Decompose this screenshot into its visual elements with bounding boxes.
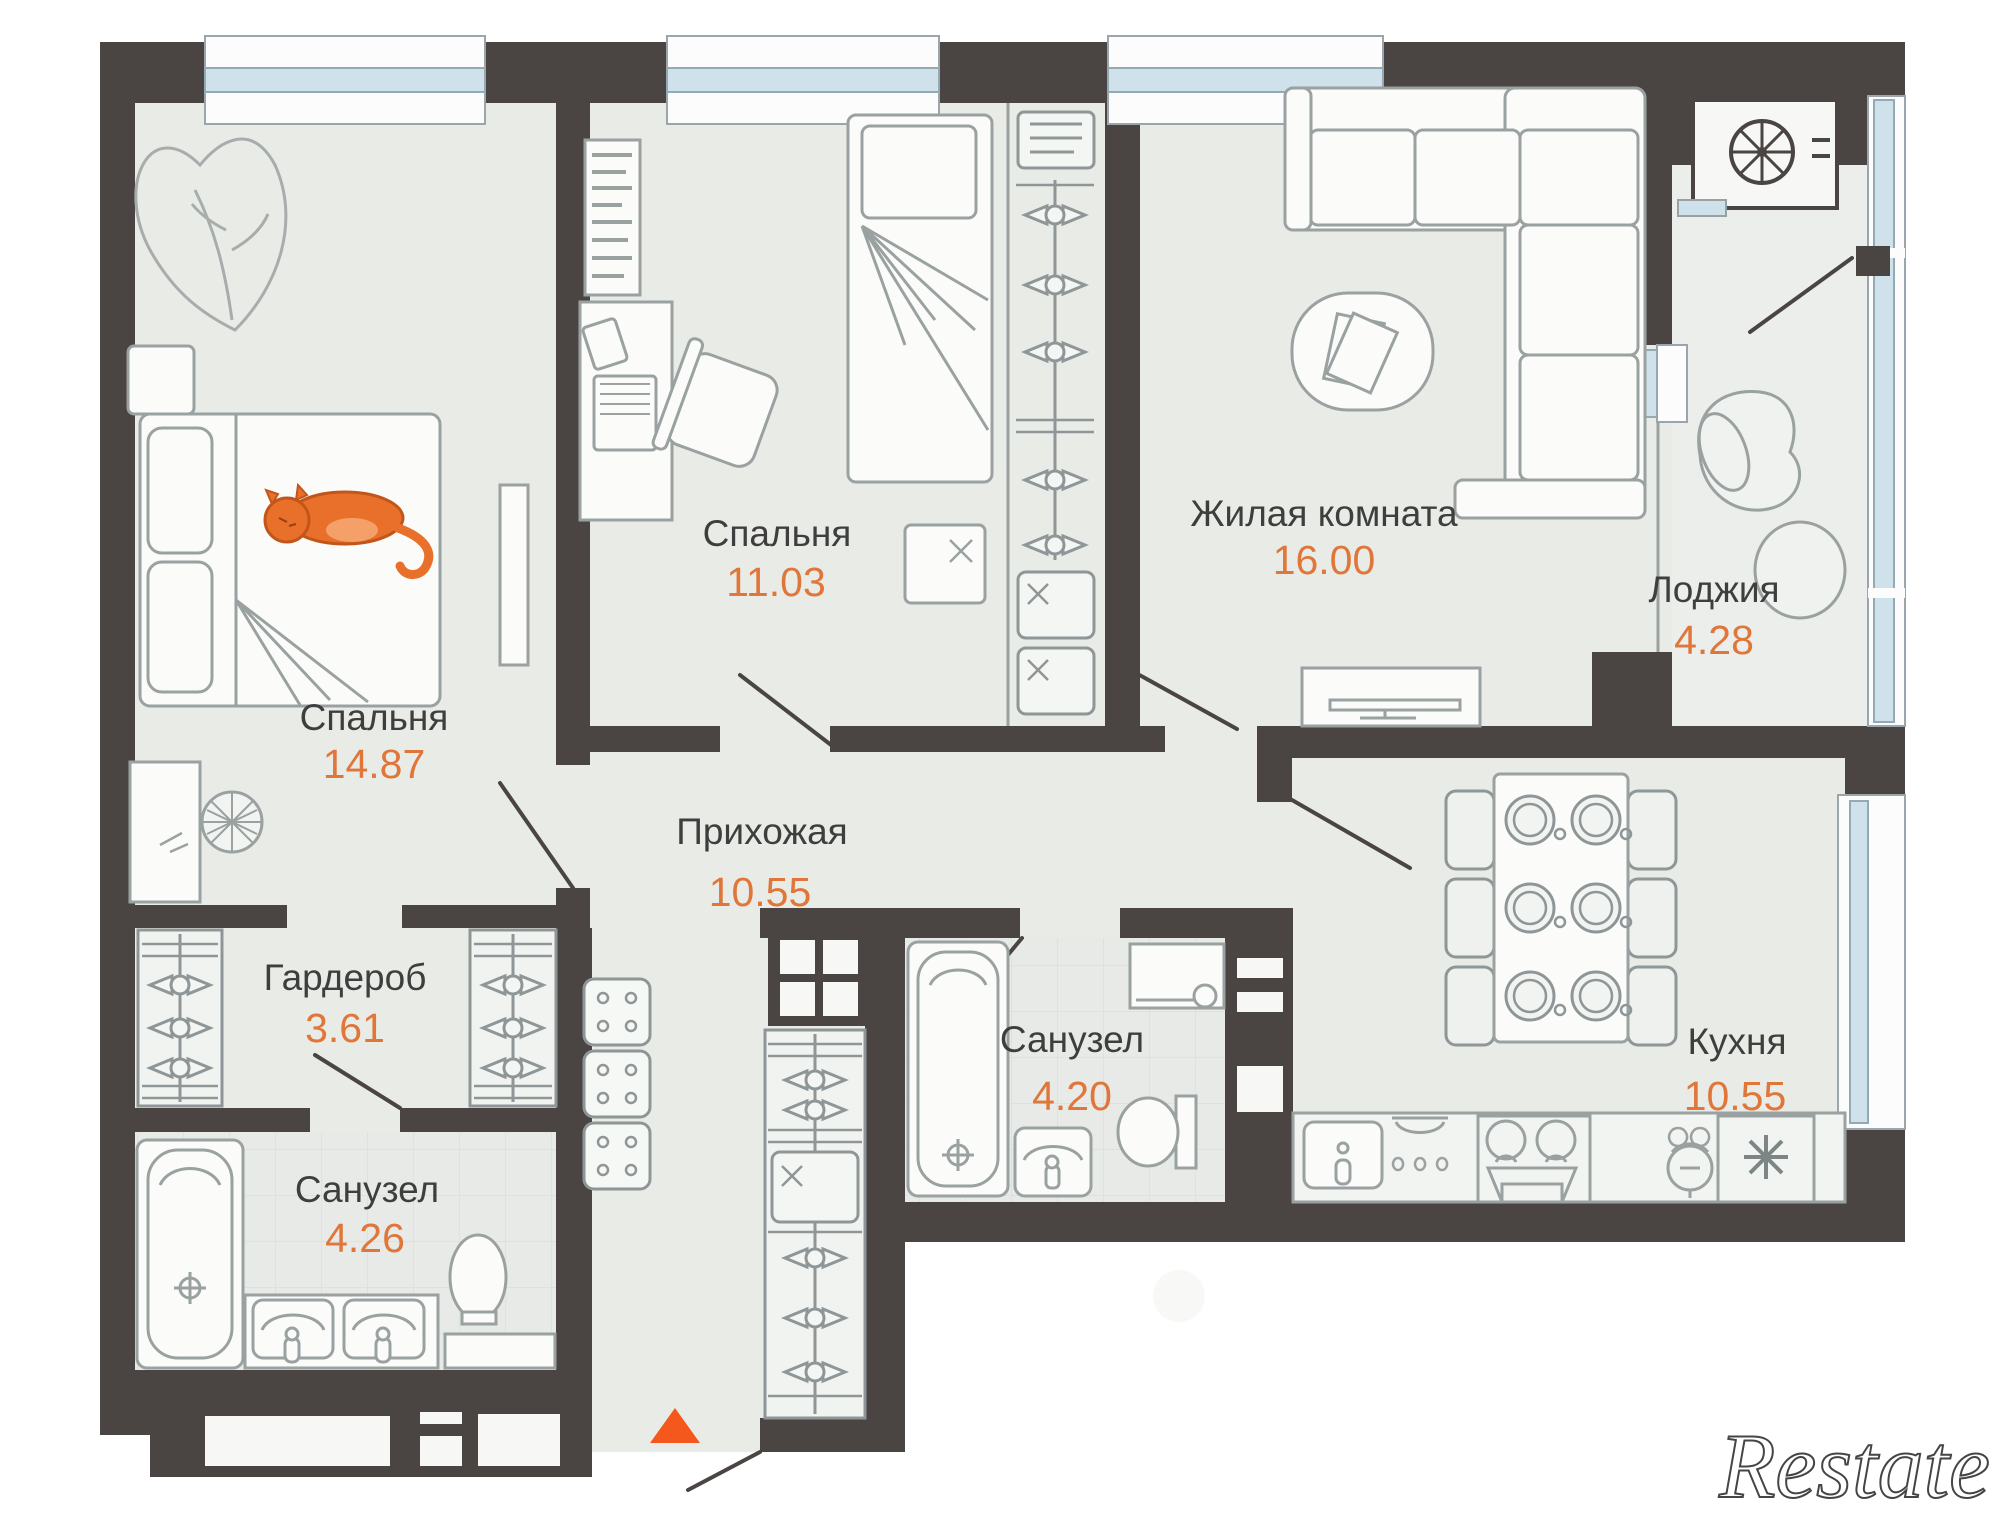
coffee-table <box>1292 293 1433 410</box>
kitchen-counter <box>1293 1113 1845 1202</box>
stove <box>1478 1116 1590 1202</box>
watermarks: циан Restate <box>1120 1232 1990 1513</box>
fridge <box>1718 1116 1814 1202</box>
wall-left <box>100 42 135 1410</box>
area-wardrobe: 3.61 <box>305 1005 385 1051</box>
shoe-cabinet <box>584 979 650 1045</box>
wall-bed1-bottom-a <box>135 905 287 928</box>
shoe-cabinet <box>584 1051 650 1117</box>
wall-bath2-top-b <box>1120 908 1293 938</box>
floor-plan: Спальня 14.87 Спальня 11.03 Жилая комнат… <box>0 0 2000 1513</box>
loggia-window-hinge <box>1856 246 1890 276</box>
bath-cabinet <box>445 1334 555 1368</box>
bathtub <box>137 1140 243 1368</box>
wall-entry-bottom <box>760 1418 905 1452</box>
wall-mid-c <box>1257 726 1905 758</box>
wall-closet-living <box>1105 103 1140 748</box>
snowflake-icon <box>1744 1135 1788 1179</box>
cian-watermark-text: циан <box>1260 1232 1618 1400</box>
loggia-shelf <box>1678 200 1726 216</box>
label-loggia: Лоджия <box>1648 569 1779 610</box>
area-kitchen: 10.55 <box>1684 1073 1787 1119</box>
shoe-cabinet <box>584 1123 650 1189</box>
dresser <box>130 762 200 902</box>
wall-bath1-bottom <box>100 1370 592 1410</box>
double-sink <box>245 1295 438 1368</box>
area-bathroom-2: 4.20 <box>1032 1073 1112 1119</box>
washing-machine <box>1130 944 1224 1008</box>
hall-wardrobe <box>765 1030 865 1418</box>
label-hallway: Прихожая <box>676 811 847 852</box>
area-bathroom-1: 4.26 <box>325 1215 405 1261</box>
sink <box>1015 1128 1091 1196</box>
pillow <box>148 562 212 692</box>
bedside-cabinet <box>905 525 985 603</box>
area-loggia: 4.28 <box>1674 617 1754 663</box>
area-bedroom-1: 14.87 <box>323 741 426 787</box>
cian-watermark: циан <box>1120 1232 1618 1400</box>
wall-loggia-step <box>1592 652 1672 726</box>
area-hallway: 10.55 <box>709 869 812 915</box>
wall-kitchen-stub <box>1257 748 1292 802</box>
label-bedroom-2: Спальня <box>703 513 852 554</box>
area-bedroom-2: 11.03 <box>726 559 826 605</box>
wall-mid-a <box>578 726 720 752</box>
door-entrance <box>688 1452 760 1490</box>
nightstand <box>128 346 194 414</box>
wall-wardrobe-bottom-a <box>135 1108 310 1132</box>
bathtub <box>908 942 1008 1196</box>
restate-watermark: Restate <box>1718 1415 1990 1513</box>
pillow <box>862 126 976 218</box>
toilet <box>1118 1096 1196 1168</box>
wall-bed1-bottom-b <box>402 905 590 928</box>
wall-loggia-divider <box>1645 103 1672 345</box>
label-bedroom-1: Спальня <box>300 697 449 738</box>
wall-bath2-left <box>865 938 905 1452</box>
label-wardrobe: Гардероб <box>264 957 427 998</box>
window-bedroom-2 <box>667 36 939 124</box>
wall-wardrobe-bottom-b <box>400 1108 592 1132</box>
window-kitchen <box>1838 795 1905 1129</box>
label-bathroom-2: Санузел <box>1000 1019 1144 1060</box>
wall-panel <box>500 485 528 665</box>
window-bedroom-1 <box>205 36 485 124</box>
round-mirror <box>202 792 262 852</box>
ac-unit <box>1693 100 1837 208</box>
dining-table <box>1446 774 1676 1045</box>
tv-stand <box>1302 668 1480 726</box>
bookshelf <box>585 140 640 295</box>
area-living-room: 16.00 <box>1273 537 1376 583</box>
label-bathroom-1: Санузел <box>295 1169 439 1210</box>
label-living-room: Жилая комната <box>1190 493 1458 534</box>
label-kitchen: Кухня <box>1687 1021 1786 1062</box>
pillow <box>148 428 212 553</box>
